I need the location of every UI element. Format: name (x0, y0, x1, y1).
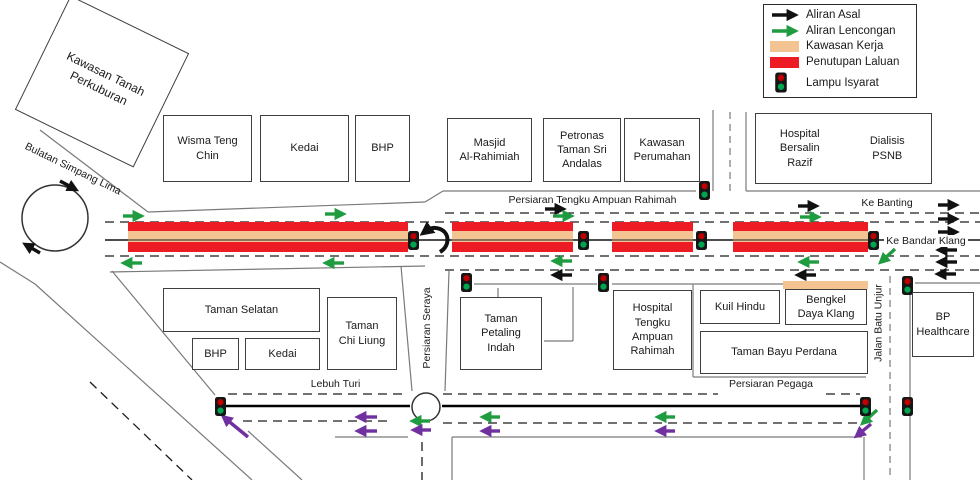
lower-roads (90, 382, 861, 480)
area-hospital-tengku-ampuan-rahimah: Hospital Tengku Ampuan Rahimah (613, 290, 692, 370)
area-wisma-teng-chin: Wisma Teng Chin (163, 115, 252, 182)
area-kawasan-perumahan: Kawasan Perumahan (624, 118, 700, 182)
legend-label: Lampu Isyarat (806, 77, 879, 89)
traffic-light-icon (578, 231, 589, 250)
legend: Aliran Asal Aliran Lencongan Kawasan Ker… (763, 4, 917, 98)
closure-swatch (770, 57, 806, 68)
legend-item-lampu-isyarat: Lampu Isyarat (770, 72, 916, 93)
legend-label: Kawasan Kerja (806, 40, 883, 52)
legend-label: Aliran Lencongan (806, 25, 896, 37)
traffic-light-icon (696, 231, 707, 250)
legend-item-kawasan-kerja: Kawasan Kerja (770, 40, 916, 52)
traffic-light-icon (699, 181, 710, 200)
traffic-light-icon (860, 397, 871, 416)
roundabout-simpang-lima (22, 185, 88, 251)
area-taman-selatan: Taman Selatan (163, 288, 320, 332)
area-kuil-hindu: Kuil Hindu (700, 290, 780, 324)
area-kedai-lower: Kedai (245, 338, 320, 370)
road-label-persiaran-tengku-ampuan-rahimah: Persiaran Tengku Ampuan Rahimah (505, 194, 680, 206)
traffic-light-icon (770, 72, 806, 93)
legend-label: Penutupan Laluan (806, 56, 899, 68)
traffic-light-icon (215, 397, 226, 416)
traffic-light-icon (461, 273, 472, 292)
area-bhp-top: BHP (355, 115, 410, 182)
area-petronas: Petronas Taman Sri Andalas (543, 118, 621, 182)
road-label-persiaran-pegaga: Persiaran Pegaga (721, 378, 821, 390)
road-label-lebuh-turi: Lebuh Turi (298, 378, 373, 390)
traffic-light-icon (868, 231, 879, 250)
work-zone-swatch (770, 41, 806, 52)
black-arrow-icon (770, 9, 806, 21)
legend-label: Aliran Asal (806, 9, 860, 21)
road-label-persiaran-seraya: Persiaran Seraya (421, 273, 433, 383)
area-hospital-bersalin-razif: Hospital Bersalin Razif Dialisis PSNB (755, 113, 932, 184)
traffic-light-icon (598, 273, 609, 292)
green-arrow-icon (770, 25, 806, 37)
mini-roundabout (412, 393, 440, 421)
legend-item-penutupan-laluan: Penutupan Laluan (770, 56, 916, 68)
traffic-diversion-diagram: Kawasan Tanah Perkuburan Wisma Teng Chin… (0, 0, 980, 480)
road-label-jalan-batu-unjur: Jalan Batu Unjur (873, 276, 885, 371)
area-bengkel-daya-klang: Bengkel Daya Klang (785, 289, 867, 325)
work-zone-bengkel (783, 281, 868, 289)
area-taman-chi-liung: Taman Chi Liung (327, 297, 397, 370)
dialisis-psnb-label: Dialisis PSNB (844, 134, 932, 163)
area-kedai-top: Kedai (260, 115, 349, 182)
diversion-route-arrows-purple (226, 417, 871, 437)
area-taman-bayu-perdana: Taman Bayu Perdana (700, 331, 868, 374)
legend-item-aliran-asal: Aliran Asal (770, 9, 916, 21)
direction-label-ke-bandar-klang: Ke Bandar Klang (884, 235, 968, 247)
traffic-light-icon (408, 231, 419, 250)
legend-item-aliran-lencongan: Aliran Lencongan (770, 25, 916, 37)
area-taman-petaling-indah: Taman Petaling Indah (460, 297, 542, 370)
direction-label-ke-banting: Ke Banting (843, 197, 931, 209)
hospital-bersalin-label: Hospital Bersalin Razif (756, 127, 844, 170)
area-bp-healthcare: BP Healthcare (912, 292, 974, 357)
area-masjid-al-rahimiah: Masjid Al-Rahimiah (447, 118, 532, 182)
area-bhp-lower: BHP (192, 338, 239, 370)
traffic-light-icon (902, 397, 913, 416)
